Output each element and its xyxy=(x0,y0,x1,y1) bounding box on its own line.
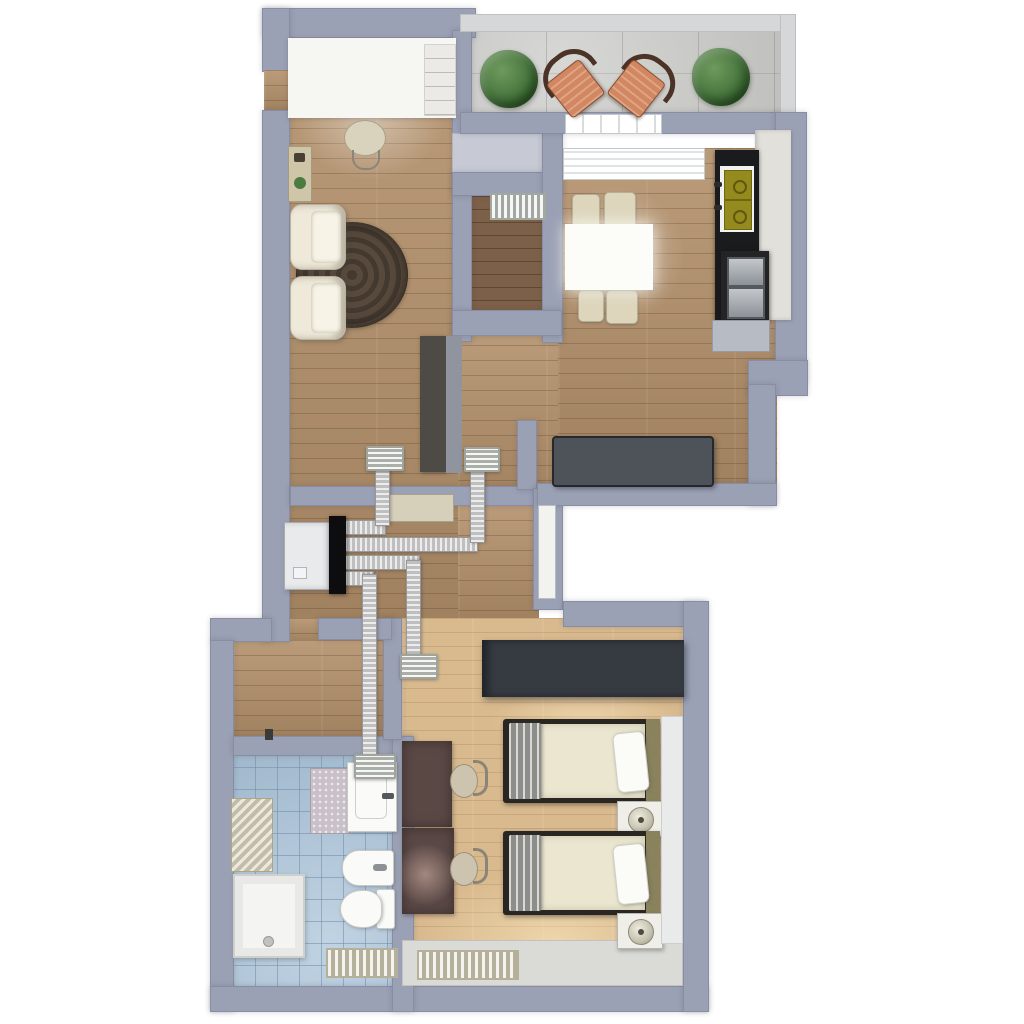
sink-basin-2 xyxy=(724,200,752,230)
duct-unit-to-hall xyxy=(344,537,478,552)
ceiling-vent-bathroom xyxy=(354,754,396,779)
shower-tray xyxy=(233,874,305,958)
sink-basin-1 xyxy=(724,170,752,200)
bidet xyxy=(342,850,394,886)
hrv-unit-front-panel xyxy=(329,516,346,594)
hall-cabinet-side xyxy=(446,336,462,473)
wall-balcony-top xyxy=(460,14,782,32)
bedroom-window-strip xyxy=(661,716,683,944)
wall-living-top xyxy=(262,8,476,38)
bed-1-pillow xyxy=(612,730,650,793)
wall-balcony-right xyxy=(780,14,796,118)
dining-chair-2 xyxy=(604,192,636,228)
bed-2-blanket xyxy=(509,835,541,911)
wall-oven xyxy=(721,251,769,321)
desk-chair-2-back xyxy=(473,848,488,884)
wall-hall-kitchen xyxy=(517,420,537,490)
sideboard-plant xyxy=(294,177,306,189)
kitchen-bench xyxy=(552,436,714,487)
wall-left-upper xyxy=(262,8,290,72)
oven-rack-upper xyxy=(727,257,765,287)
entry-door-hinge xyxy=(265,729,273,740)
single-bed-2 xyxy=(503,831,660,915)
dining-chair-1 xyxy=(572,194,600,228)
hrv-ventilation-unit xyxy=(284,522,332,590)
balcony-plant-2 xyxy=(692,48,750,106)
desk-chair-1-back xyxy=(473,760,488,796)
office-chair-base xyxy=(352,150,380,170)
wall-bottom xyxy=(210,986,709,1012)
single-bed-1 xyxy=(503,719,660,803)
armchair-1-cushion xyxy=(311,211,341,263)
sideboard xyxy=(288,146,312,202)
toilet xyxy=(340,888,394,928)
nightstand-2-lamp xyxy=(628,919,654,945)
bedroom-door xyxy=(538,505,556,599)
hall-open-door-panel xyxy=(387,494,454,522)
duct-hall-riser xyxy=(470,467,485,543)
bed-2-pillow xyxy=(612,842,650,905)
duct-bathroom-drop xyxy=(362,574,377,760)
duct-bedroom-drop xyxy=(406,560,421,662)
desk-chair-1 xyxy=(450,756,484,802)
wall-storage-bottom xyxy=(452,310,562,336)
ceiling-vent-bedroom xyxy=(400,654,438,679)
bedroom-desk-2 xyxy=(402,828,454,914)
ceiling-vent-living xyxy=(366,446,404,471)
dining-table xyxy=(565,224,653,290)
bathroom-radiator xyxy=(326,948,398,978)
hall-opening-floor xyxy=(290,618,318,642)
bedroom-wardrobe xyxy=(482,640,684,697)
balcony-plant-1 xyxy=(480,50,538,108)
duct-living-riser xyxy=(375,466,390,526)
hall-cabinet-dark xyxy=(420,336,446,472)
hrv-unit-detail xyxy=(293,567,307,579)
storage-transom-grille xyxy=(490,193,546,220)
bed-1-headboard xyxy=(646,719,660,803)
bedroom-desk-1 xyxy=(402,741,452,827)
toilet-bowl xyxy=(340,890,382,928)
nightstand-2 xyxy=(617,913,663,949)
wall-left-step xyxy=(210,618,272,642)
sink-drain-1 xyxy=(733,180,747,194)
dining-chair-4 xyxy=(606,290,638,324)
armchair-2-cushion xyxy=(311,283,341,333)
bed-1-blanket xyxy=(509,723,541,799)
bidet-tap xyxy=(373,864,387,871)
kitchen-lower-counter xyxy=(712,320,770,352)
bathroom-cabinet xyxy=(231,798,273,872)
armchair-2 xyxy=(290,276,346,340)
kitchen-window-sill xyxy=(563,148,705,180)
nightstand-1-lamp xyxy=(628,807,654,833)
ceiling-vent-hall xyxy=(464,447,500,472)
sink-drain-2 xyxy=(733,210,747,224)
wall-bedroom-right xyxy=(683,601,709,1012)
sink-faucet-2 xyxy=(714,205,722,210)
office-chair xyxy=(338,120,390,172)
wall-entry-top xyxy=(318,618,392,640)
dining-chair-3 xyxy=(578,290,604,322)
oven-rack-lower xyxy=(727,287,765,319)
sideboard-item xyxy=(294,153,305,162)
bedroom-radiator xyxy=(417,950,519,980)
desk-chair-2 xyxy=(450,844,484,890)
desk-2-lamp-sheen xyxy=(402,836,454,906)
armchair-1 xyxy=(290,204,346,270)
bed-2-headboard xyxy=(646,831,660,915)
shower-drain xyxy=(263,936,274,947)
entry-door-gap xyxy=(264,70,290,112)
sink-faucet-1 xyxy=(714,182,722,187)
bath-mat xyxy=(310,768,350,834)
floor-plan-canvas xyxy=(0,0,1024,1024)
washbasin-faucet xyxy=(382,793,394,799)
desk-shelf-column xyxy=(424,44,456,116)
